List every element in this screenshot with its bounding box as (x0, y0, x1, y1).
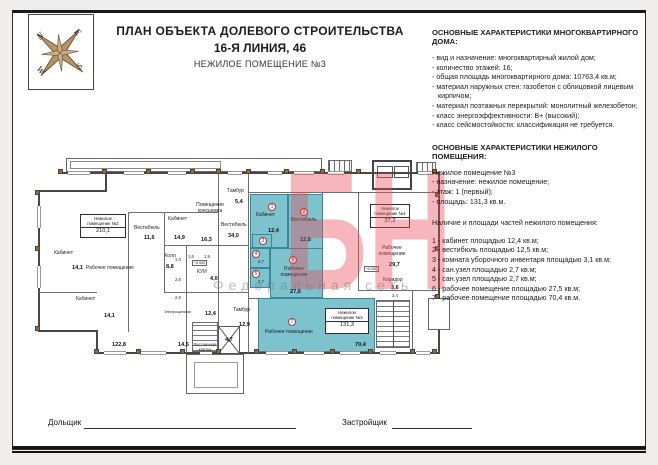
room-area: 14,1 (72, 265, 83, 271)
floor-plan-document: { "header": { "title1": "ПЛАН ОБЪЕКТА ДО… (0, 0, 658, 465)
room-label: Кабинет (168, 217, 187, 223)
signature-line-left (84, 428, 296, 429)
unit-item: - назначение: нежилое помещение; (432, 178, 642, 188)
elevation-tag: +0.000 (192, 260, 207, 266)
room-label: Кабинет (76, 297, 95, 303)
room-label: Тамбур (227, 189, 244, 195)
room-label: Вестибюль (221, 223, 247, 229)
partition (38, 292, 97, 293)
signature-label-right: Застройщик (342, 418, 387, 427)
part-item: 4 - сан.узел площадью 2,7 кв.м; (432, 266, 642, 276)
unit2-label-box: Нежилоепомещение №2 210,1 (80, 214, 126, 238)
building-item: - класс энергоэффективности: B+ (высокий… (432, 112, 642, 122)
wall (38, 330, 98, 332)
part-item: 7 - рабочее помещение площадью 70,4 кв.м… (432, 294, 642, 304)
room-area: 70,4 (355, 342, 366, 348)
partition (186, 245, 187, 353)
partition (164, 245, 249, 246)
building-item: - общая площадь многоквартирного дома: 1… (432, 73, 642, 83)
part-item: 1 - кабинет площадью 12,4 кв.м; (432, 237, 642, 247)
building-item: - вид и назначение: многоквартирный жило… (432, 54, 642, 64)
room-area: 12,9 (239, 322, 250, 328)
small-area: 2,9 (175, 296, 181, 301)
red-watermark: БН (283, 148, 452, 316)
unit-characteristics-heading: ОСНОВНЫЕ ХАРАКТЕРИСТИКИ НЕЖИЛОГО ПОМЕЩЕН… (432, 143, 642, 161)
room-label: Рабочее помещение (265, 330, 313, 336)
room-label: Рабочее помещение (86, 266, 134, 272)
building-item: - количество этажей: 16; (432, 64, 642, 74)
room-area: 14,9 (174, 235, 185, 241)
parts-heading: Наличие и площади частей нежилого помеще… (432, 219, 642, 229)
room-label: Тамбур (233, 308, 250, 314)
room-area: 5,4 (235, 199, 243, 205)
small-area: 1,0 (175, 258, 181, 263)
bottom-double-rule (12, 446, 646, 453)
room-number-4: 4 (252, 250, 260, 258)
building-item: - материал наружных стен: газобетон с об… (432, 83, 642, 102)
room-label: Помещениеконсьержа (190, 203, 230, 215)
address-line: 16-Я ЛИНИЯ, 46 (95, 41, 425, 55)
room-label: Вестибюль (134, 226, 160, 232)
room-area: 12,4 (205, 311, 216, 317)
part-item: 5 - сан.узел площадью 2,7 кв.м; (432, 275, 642, 285)
room-area: 122,8 (112, 342, 126, 348)
wall (105, 172, 107, 192)
subtitle: НЕЖИЛОЕ ПОМЕЩЕНИЕ №3 (95, 59, 425, 69)
room-label: Электрощитовая (164, 310, 191, 315)
title-block: ПЛАН ОБЪЕКТА ДОЛЕВОГО СТРОИТЕЛЬСТВА 16-Я… (95, 24, 425, 69)
unit-item: - этаж: 1 (первый); (432, 188, 642, 198)
room-area: 14,1 (104, 313, 115, 319)
building-item: - материал поэтажных перекрытий: монолит… (432, 102, 642, 112)
partition (128, 212, 129, 332)
signature-label-left: Дольщик (48, 418, 81, 427)
room-area: 16,3 (201, 237, 212, 243)
compass-box: N E S W (28, 14, 94, 90)
part-item: 2 - вестибюль площадью 12,5 кв.м; (432, 246, 642, 256)
room-area: 4,7 (225, 337, 233, 343)
room-label: КУИ (197, 270, 207, 276)
room-label: Кабинет (54, 251, 73, 257)
room-number-3: 3 (259, 237, 267, 245)
room-area: 34,0 (228, 233, 239, 239)
page-title: ПЛАН ОБЪЕКТА ДОЛЕВОГО СТРОИТЕЛЬСТВА (95, 24, 425, 38)
compass-rose-icon (29, 15, 91, 87)
porch-annex (186, 354, 244, 394)
room-number-1: 1 (268, 203, 276, 211)
part-item: 6 - рабочее помещение площадью 27,5 кв.м… (432, 285, 642, 295)
characteristics-panel: ОСНОВНЫЕ ХАРАКТЕРИСТИКИ МНОГОКВАРТИРНОГО… (432, 28, 642, 304)
signature-line-right (392, 428, 472, 429)
room-area: 12,4 (268, 228, 279, 234)
room-label: Кабинет (256, 213, 275, 219)
room-area: 2,7 (258, 260, 264, 265)
room-area: 8,8 (166, 264, 174, 270)
unit-title: Нежилое помещение №3 (432, 169, 642, 179)
partition (164, 212, 165, 292)
building-characteristics-heading: ОСНОВНЫЕ ХАРАКТЕРИСТИКИ МНОГОКВАРТИРНОГО… (432, 28, 642, 46)
building-item: - класс сейсмостойкости: классификация н… (432, 121, 642, 131)
room-label: Лестничнаяклетка (188, 343, 222, 353)
unit-item: - площадь: 131,3 кв.м. (432, 198, 642, 208)
small-area: 2,8 (175, 278, 181, 283)
wall (38, 190, 106, 192)
part-item: 3 - комната уборочного инвентаря площадь… (432, 256, 642, 266)
room-area: 11,6 (144, 235, 155, 241)
